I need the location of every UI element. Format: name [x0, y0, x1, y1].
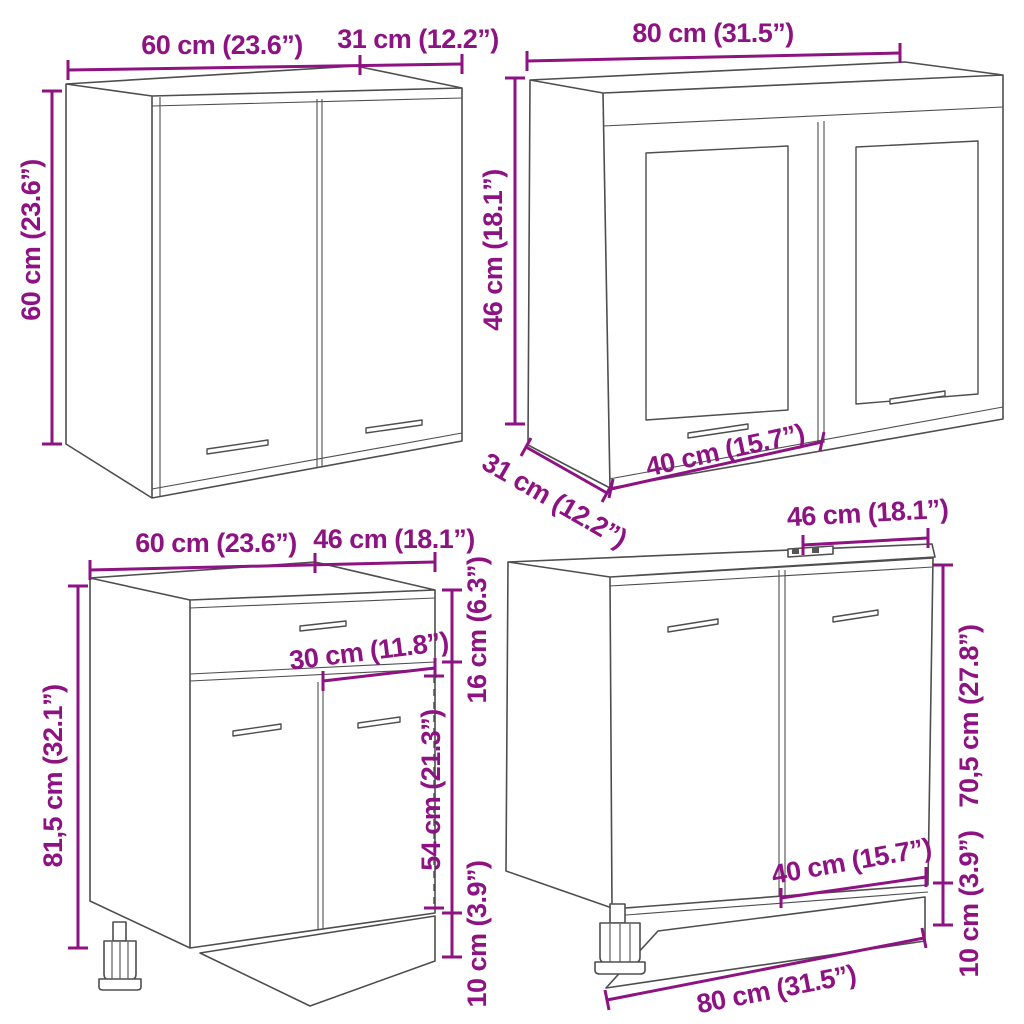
dim-label-height: 60 cm (23.6”) [16, 159, 46, 321]
product-dimensions-diagram: 60 cm (23.6”) 31 cm (12.2”) 60 cm (23.6”… [0, 0, 1024, 1024]
dim-label-depth: 46 cm (18.1”) [313, 524, 475, 554]
sink-base-cabinet-drawing [506, 544, 935, 988]
cabinet-faces [66, 66, 462, 498]
dim-label-depth: 31 cm (12.2”) [337, 24, 499, 54]
dim-label-width: 60 cm (23.6”) [135, 528, 297, 558]
dim-label-height: 81,5 cm (32.1”) [38, 684, 68, 867]
cabinet-faces [90, 562, 435, 948]
depth-dim-line [803, 538, 928, 545]
dim-label-width: 80 cm (31.5”) [632, 18, 794, 48]
dim-label-door-height: 54 cm (21.3”) [416, 709, 446, 871]
foot-base [99, 979, 141, 990]
foot-base [595, 962, 645, 974]
diagram-svg: 60 cm (23.6”) 31 cm (12.2”) 60 cm (23.6”… [0, 0, 1024, 1024]
dim-label-plinth: 10 cm (3.9”) [462, 860, 492, 1007]
dim-label-top-section: 16 cm (6.3”) [462, 556, 492, 703]
dim-label-height: 46 cm (18.1”) [478, 169, 508, 331]
base-drawer-cabinet-drawing [90, 562, 435, 1006]
adjustable-foot [99, 922, 141, 990]
dim-label-height: 70,5 cm (27.8”) [954, 624, 984, 807]
glass-wall-cabinet-drawing [528, 62, 1003, 488]
dim-label-depth: 46 cm (18.1”) [786, 494, 949, 532]
width-dim-line [68, 64, 462, 70]
width-dim-line [527, 53, 900, 61]
cabinet-faces [528, 62, 1003, 488]
foot-stem [610, 904, 625, 923]
foot-stem [113, 922, 126, 941]
plinth [606, 897, 925, 988]
dim-label-width: 60 cm (23.6”) [141, 30, 303, 60]
dim-label-plinth: 10 cm (3.9”) [954, 830, 984, 977]
wall-cabinet-two-door-drawing [66, 66, 462, 498]
